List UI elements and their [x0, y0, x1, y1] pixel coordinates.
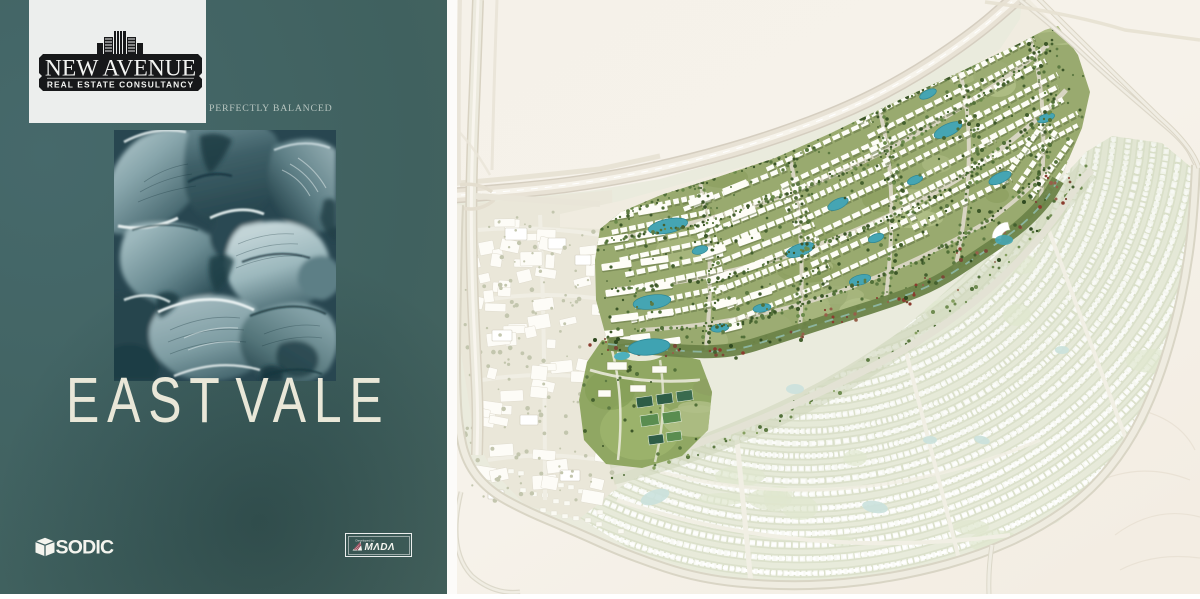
svg-text:SODIC: SODIC [56, 537, 114, 559]
svg-text:REAL ESTATE CONSULTANCY: REAL ESTATE CONSULTANCY [47, 80, 194, 90]
svg-text:MΛDΛ: MΛDΛ [364, 542, 395, 553]
svg-text:NEW AVENUE: NEW AVENUE [45, 56, 196, 82]
